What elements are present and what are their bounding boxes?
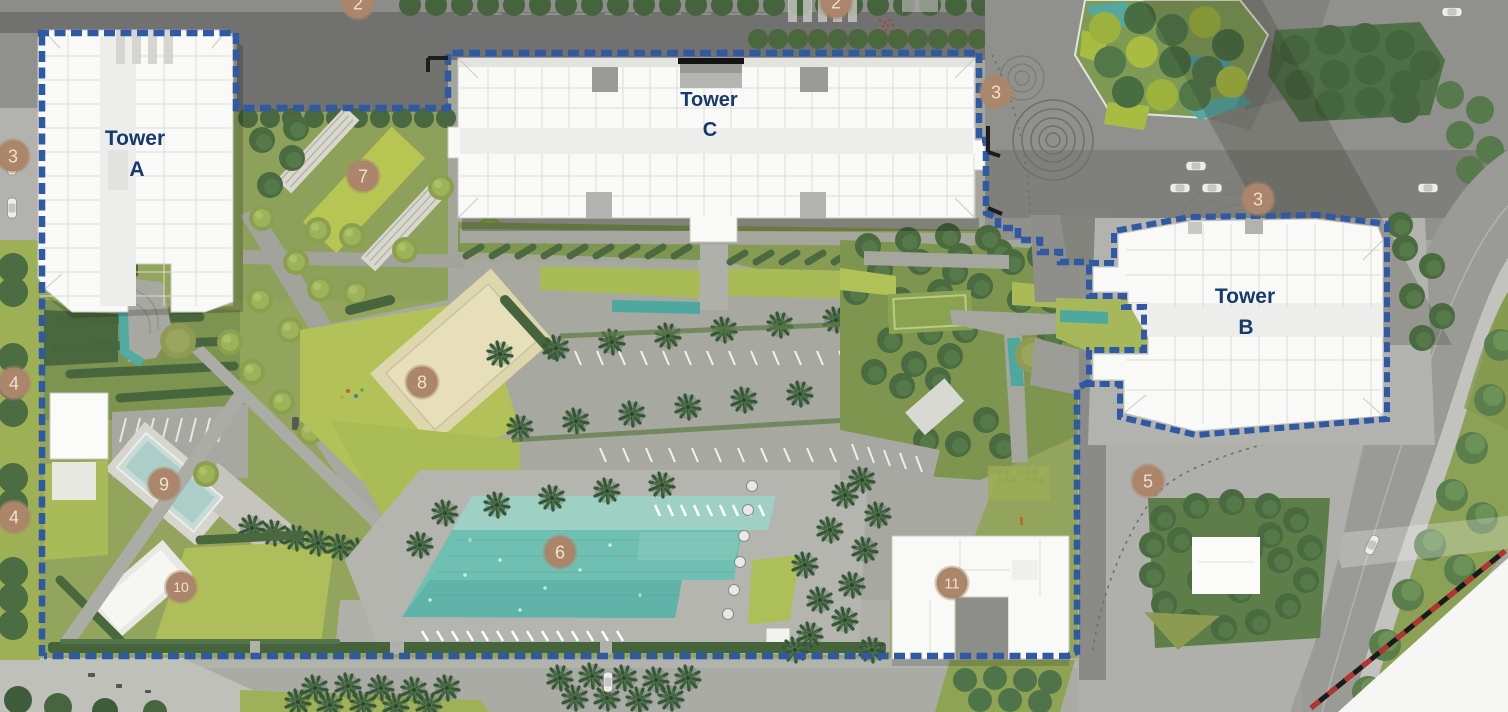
svg-text:9: 9 — [159, 474, 169, 494]
svg-text:8: 8 — [417, 372, 427, 392]
svg-text:5: 5 — [1143, 471, 1153, 491]
svg-text:3: 3 — [991, 82, 1001, 102]
svg-text:Tower: Tower — [680, 89, 738, 111]
svg-text:Tower: Tower — [1215, 285, 1275, 308]
svg-text:3: 3 — [1253, 189, 1263, 209]
svg-text:2: 2 — [831, 0, 841, 12]
svg-text:10: 10 — [173, 579, 189, 595]
svg-text:A: A — [129, 158, 144, 181]
svg-text:B: B — [1238, 316, 1253, 339]
svg-text:C: C — [703, 119, 717, 141]
svg-text:2: 2 — [353, 0, 363, 13]
svg-text:4: 4 — [9, 373, 19, 393]
svg-text:3: 3 — [8, 146, 18, 166]
svg-text:4: 4 — [9, 507, 19, 527]
svg-text:7: 7 — [358, 166, 368, 186]
svg-text:6: 6 — [555, 542, 565, 562]
svg-text:Tower: Tower — [105, 127, 165, 150]
svg-text:11: 11 — [944, 575, 960, 592]
